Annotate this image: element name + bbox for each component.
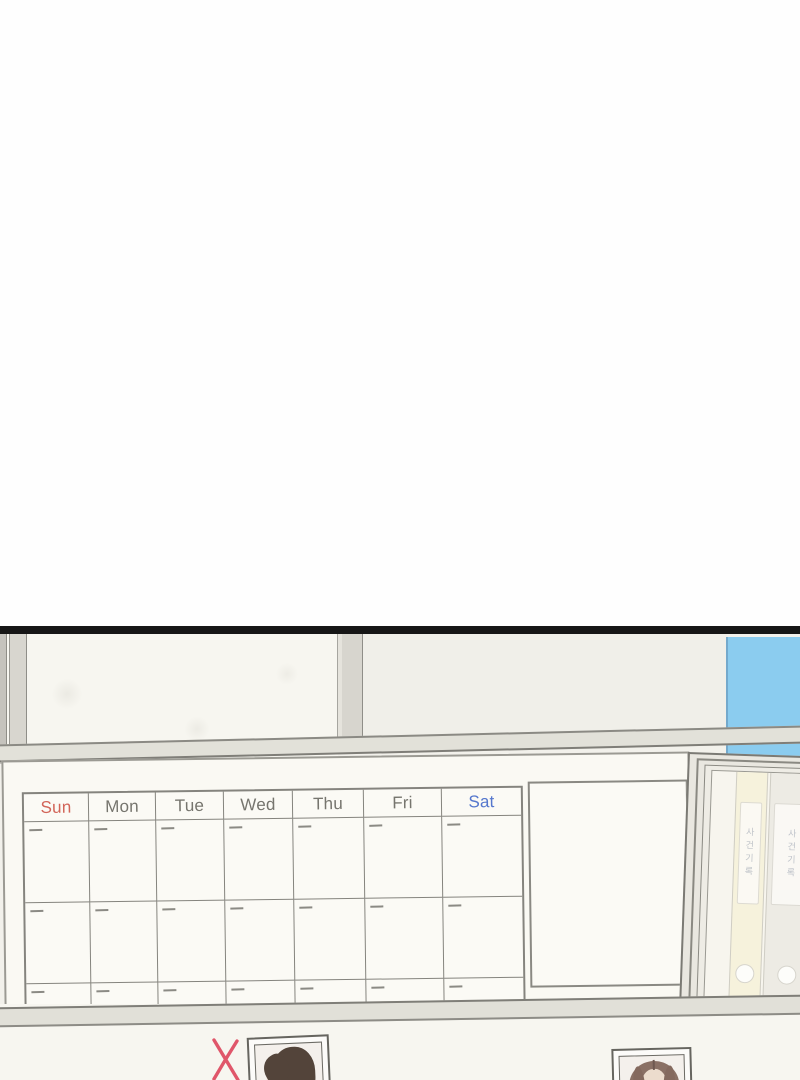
calendar-cell [89, 820, 157, 902]
calendar-cell [443, 897, 523, 979]
date-line-mark [231, 988, 244, 990]
binder-spine-label: 사건기록 [771, 803, 800, 906]
date-line-mark [300, 987, 313, 989]
date-line-mark [163, 989, 176, 991]
calendar-cell [24, 821, 90, 903]
date-line-mark [30, 910, 43, 912]
date-line-mark [299, 906, 312, 908]
file-cabinet: 사건기록사건기록 [679, 752, 800, 1020]
day-header-tue: Tue [156, 792, 224, 821]
calendar-cell [156, 820, 225, 902]
calendar-cell [90, 901, 158, 983]
binder-hole [735, 964, 755, 984]
calendar-grid: SunMonTueWedThuFriSat [22, 786, 526, 1013]
calendar-whiteboard: SunMonTueWedThuFriSat [1, 752, 692, 1013]
webtoon-page: SunMonTueWedThuFriSat 사건기록사건기록 [0, 0, 800, 1080]
date-line-mark [298, 825, 311, 827]
date-line-mark [371, 986, 384, 988]
calendar-cell [364, 817, 443, 899]
case-file-binder-2: 사건기록 [762, 773, 800, 1002]
calendar-cell [25, 902, 91, 984]
date-line-mark [369, 824, 382, 826]
calendar-cell [294, 899, 366, 981]
portrait-photo-right [611, 1047, 692, 1080]
day-header-mon: Mon [89, 792, 156, 821]
notes-box [528, 780, 691, 988]
date-line-mark [370, 905, 383, 907]
binder-spine-label: 사건기록 [737, 802, 763, 905]
comic-panel-office-scene: SunMonTueWedThuFriSat 사건기록사건기록 [0, 634, 800, 1080]
blank-gutter [0, 0, 800, 626]
date-line-mark [161, 827, 174, 829]
date-line-mark [29, 829, 42, 831]
panel-top-border [0, 626, 800, 634]
calendar-cell [365, 898, 444, 980]
wall-pillar-left [9, 634, 27, 760]
cabinet-shelf: 사건기록사건기록 [703, 770, 800, 1002]
date-line-mark [229, 826, 242, 828]
calendar-cell [442, 816, 522, 898]
portrait-photo-left [247, 1034, 332, 1080]
day-header-sat: Sat [442, 788, 521, 817]
red-x-mark [210, 1038, 242, 1080]
day-header-thu: Thu [293, 790, 364, 819]
date-line-mark [448, 904, 461, 906]
date-line-mark [230, 907, 243, 909]
case-file-binder-1: 사건기록 [728, 772, 768, 1000]
day-header-wed: Wed [224, 791, 293, 820]
binder-hole [777, 965, 797, 985]
date-line-mark [96, 990, 109, 992]
day-header-sun: Sun [24, 793, 89, 822]
photo-frame-matte [619, 1054, 686, 1080]
date-line-mark [447, 823, 460, 825]
date-line-mark [31, 991, 44, 993]
calendar-cell [157, 901, 226, 983]
date-line-mark [162, 908, 175, 910]
portrait-hair-part [653, 1060, 655, 1070]
date-line-mark [449, 985, 462, 987]
date-line-mark [95, 909, 108, 911]
calendar-cell [224, 819, 294, 901]
calendar-cell [293, 818, 365, 900]
day-header-fri: Fri [364, 789, 442, 818]
date-line-mark [94, 828, 107, 830]
calendar-cell [225, 900, 295, 982]
photo-frame-matte [254, 1042, 324, 1080]
wall-pillar-middle [337, 634, 363, 748]
